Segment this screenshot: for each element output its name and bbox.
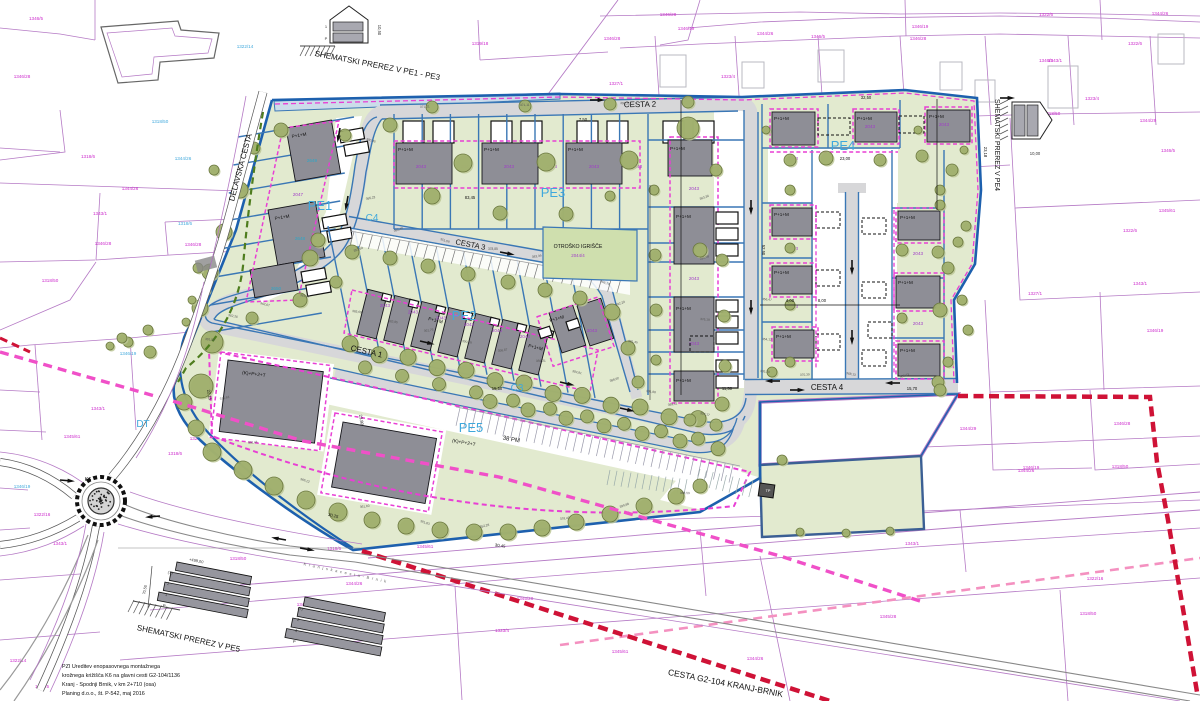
svg-text:11,50: 11,50 xyxy=(722,386,733,391)
svg-text:1327/1: 1327/1 xyxy=(1028,291,1042,296)
svg-text:1318/50: 1318/50 xyxy=(152,119,169,124)
svg-text:1343/1: 1343/1 xyxy=(1133,281,1147,286)
svg-text:1346/19: 1346/19 xyxy=(1023,465,1040,470)
svg-text:1346/28: 1346/28 xyxy=(604,36,621,41)
svg-text:PE4: PE4 xyxy=(831,138,856,153)
svg-text:P+1+M: P+1+M xyxy=(774,270,789,275)
svg-text:P+1+M: P+1+M xyxy=(676,378,691,383)
svg-text:1346/28: 1346/28 xyxy=(95,241,112,246)
svg-text:P+1+M: P+1+M xyxy=(676,306,691,311)
svg-text:8,00: 8,00 xyxy=(818,298,827,303)
svg-text:1344/26: 1344/26 xyxy=(1152,11,1169,16)
svg-text:P+1+M: P+1+M xyxy=(484,147,499,152)
svg-text:2043: 2043 xyxy=(913,251,924,256)
svg-text:1322/6: 1322/6 xyxy=(1123,228,1137,233)
svg-text:PE5: PE5 xyxy=(459,420,484,435)
svg-text:Kranj - Spodnji Brnik, v km 2+: Kranj - Spodnji Brnik, v km 2+710 (osa) xyxy=(62,682,156,688)
svg-text:371,11: 371,11 xyxy=(520,103,530,107)
svg-text:1319/18: 1319/18 xyxy=(472,41,489,46)
svg-text:PZI Ureditev enopasovnega mont: PZI Ureditev enopasovnega montažnega xyxy=(62,664,160,670)
svg-text:1318/6: 1318/6 xyxy=(81,154,95,159)
svg-text:1345/61: 1345/61 xyxy=(612,649,629,654)
svg-text:1346/28: 1346/28 xyxy=(660,12,677,17)
svg-text:23,00: 23,00 xyxy=(840,156,851,161)
svg-text:P+1+M: P+1+M xyxy=(857,116,872,121)
svg-text:1346/19: 1346/19 xyxy=(14,484,31,489)
svg-text:1323/4: 1323/4 xyxy=(721,74,735,79)
svg-text:1322/6: 1322/6 xyxy=(1039,12,1053,17)
svg-text:2043: 2043 xyxy=(689,186,700,191)
svg-text:OTROŠKO IGRIŠČE: OTROŠKO IGRIŠČE xyxy=(554,243,603,250)
svg-text:378,85: 378,85 xyxy=(488,247,498,251)
svg-text:1323/4: 1323/4 xyxy=(1085,96,1099,101)
svg-text:PE1: PE1 xyxy=(308,198,333,213)
svg-text:2043: 2043 xyxy=(865,124,876,129)
svg-text:368,59: 368,59 xyxy=(680,491,690,495)
svg-text:2649: 2649 xyxy=(307,158,318,163)
svg-text:1322/6: 1322/6 xyxy=(1128,41,1142,46)
svg-text:4,00: 4,00 xyxy=(786,298,795,303)
svg-text:P+1+M: P+1+M xyxy=(900,348,915,353)
svg-text:1344/26: 1344/26 xyxy=(747,656,764,661)
svg-text:1318/6: 1318/6 xyxy=(178,221,192,226)
svg-text:K6: K6 xyxy=(85,477,92,483)
svg-text:1344/26: 1344/26 xyxy=(757,31,774,36)
svg-text:1345/61: 1345/61 xyxy=(417,544,434,549)
svg-text:52,50: 52,50 xyxy=(761,245,766,256)
svg-text:P+1+M: P+1+M xyxy=(929,114,944,119)
svg-text:CESTA 4: CESTA 4 xyxy=(811,383,844,392)
svg-text:2044/4: 2044/4 xyxy=(571,253,585,258)
svg-text:PE2: PE2 xyxy=(452,308,477,323)
svg-text:P+1+M: P+1+M xyxy=(676,214,691,219)
svg-text:P+1+M: P+1+M xyxy=(776,334,791,339)
svg-text:2043: 2043 xyxy=(380,303,391,308)
svg-text:1322/14: 1322/14 xyxy=(10,658,27,663)
svg-text:2043: 2043 xyxy=(408,309,419,314)
svg-text:1346/19: 1346/19 xyxy=(120,351,137,356)
svg-text:2047: 2047 xyxy=(293,192,304,197)
svg-text:DT: DT xyxy=(136,419,149,430)
svg-text:P+1+M: P+1+M xyxy=(774,116,789,121)
svg-text:1346/5: 1346/5 xyxy=(1039,58,1053,63)
svg-text:1346/19: 1346/19 xyxy=(912,24,929,29)
svg-text:1318/50: 1318/50 xyxy=(230,556,247,561)
svg-text:23,18: 23,18 xyxy=(983,147,988,158)
svg-text:C4: C4 xyxy=(366,213,379,224)
svg-text:1346/5: 1346/5 xyxy=(29,16,43,21)
svg-text:1345/61: 1345/61 xyxy=(64,434,81,439)
svg-text:2650: 2650 xyxy=(271,286,282,291)
svg-text:370,39: 370,39 xyxy=(800,372,810,377)
svg-text:1346/19: 1346/19 xyxy=(1147,328,1164,333)
svg-text:1322/16: 1322/16 xyxy=(1087,576,1104,581)
svg-text:1346/28: 1346/28 xyxy=(185,242,202,247)
svg-text:P+1+M: P+1+M xyxy=(900,215,915,220)
svg-text:P: P xyxy=(325,36,328,41)
svg-text:10,00: 10,00 xyxy=(1030,151,1041,156)
svg-text:1345/28: 1345/28 xyxy=(880,614,897,619)
svg-text:10,50: 10,50 xyxy=(377,25,382,36)
svg-text:1346/28: 1346/28 xyxy=(14,74,31,79)
svg-text:371,21: 371,21 xyxy=(420,104,430,109)
svg-text:1343/1: 1343/1 xyxy=(91,406,105,411)
svg-text:2043: 2043 xyxy=(492,328,503,333)
svg-text:1346/5: 1346/5 xyxy=(1161,148,1175,153)
svg-text:2043: 2043 xyxy=(689,276,700,281)
svg-text:1344/29: 1344/29 xyxy=(1140,118,1157,123)
svg-text:1318/50: 1318/50 xyxy=(1080,611,1097,616)
svg-text:1344/26: 1344/26 xyxy=(346,581,363,586)
svg-text:83,45: 83,45 xyxy=(465,195,476,200)
svg-text:2043: 2043 xyxy=(939,122,950,127)
svg-text:1343/1: 1343/1 xyxy=(93,211,107,216)
svg-text:P+1+M: P+1+M xyxy=(568,147,583,152)
svg-text:P+1+M: P+1+M xyxy=(398,147,413,152)
svg-text:PE3: PE3 xyxy=(541,185,566,200)
svg-text:C3: C3 xyxy=(511,383,524,394)
svg-text:P+1+M: P+1+M xyxy=(898,280,913,285)
svg-text:32,50: 32,50 xyxy=(861,95,872,100)
svg-text:P+1+M: P+1+M xyxy=(670,146,685,151)
svg-text:1346/28: 1346/28 xyxy=(910,36,927,41)
svg-text:1327/1: 1327/1 xyxy=(609,81,623,86)
svg-text:krožnega križišča K6 na glavni: krožnega križišča K6 na glavni cesti G2-… xyxy=(62,673,180,679)
svg-text:2043: 2043 xyxy=(504,164,515,169)
svg-text:1346/5: 1346/5 xyxy=(811,34,825,39)
svg-text:Planing d.o.o., št. P-542, maj: Planing d.o.o., št. P-542, maj 2016 xyxy=(62,691,145,697)
svg-text:2043: 2043 xyxy=(913,321,924,326)
svg-text:1344/26: 1344/26 xyxy=(122,186,139,191)
svg-text:7,50: 7,50 xyxy=(579,117,588,122)
svg-text:354,12: 354,12 xyxy=(762,337,772,342)
svg-text:1346/28: 1346/28 xyxy=(1114,421,1131,426)
svg-text:1318/50: 1318/50 xyxy=(1112,464,1129,469)
svg-text:2043: 2043 xyxy=(416,164,427,169)
svg-text:1344/26: 1344/26 xyxy=(175,156,192,161)
svg-text:1344/29: 1344/29 xyxy=(960,426,977,431)
svg-text:359,21: 359,21 xyxy=(536,359,546,363)
svg-text:SHEMATSKI PREREZ V PE4: SHEMATSKI PREREZ V PE4 xyxy=(993,99,1000,191)
svg-text:1323/4: 1323/4 xyxy=(495,628,509,633)
svg-text:1343/1: 1343/1 xyxy=(905,541,919,546)
svg-text:2648: 2648 xyxy=(295,236,306,241)
svg-text:2043: 2043 xyxy=(520,334,531,339)
svg-text:1345/61: 1345/61 xyxy=(1159,208,1176,213)
svg-text:TP: TP xyxy=(766,489,771,493)
svg-text:15,70: 15,70 xyxy=(907,386,918,391)
svg-text:15,50: 15,50 xyxy=(492,386,503,391)
svg-text:1322/16: 1322/16 xyxy=(34,512,51,517)
svg-text:1346/19: 1346/19 xyxy=(678,26,695,31)
svg-text:1318/6: 1318/6 xyxy=(168,451,182,456)
svg-text:1318/50: 1318/50 xyxy=(42,278,59,283)
svg-text:2043: 2043 xyxy=(589,164,600,169)
svg-text:1322/14: 1322/14 xyxy=(237,44,254,49)
svg-text:P+1+M: P+1+M xyxy=(774,212,789,217)
svg-text:2043: 2043 xyxy=(587,328,598,333)
